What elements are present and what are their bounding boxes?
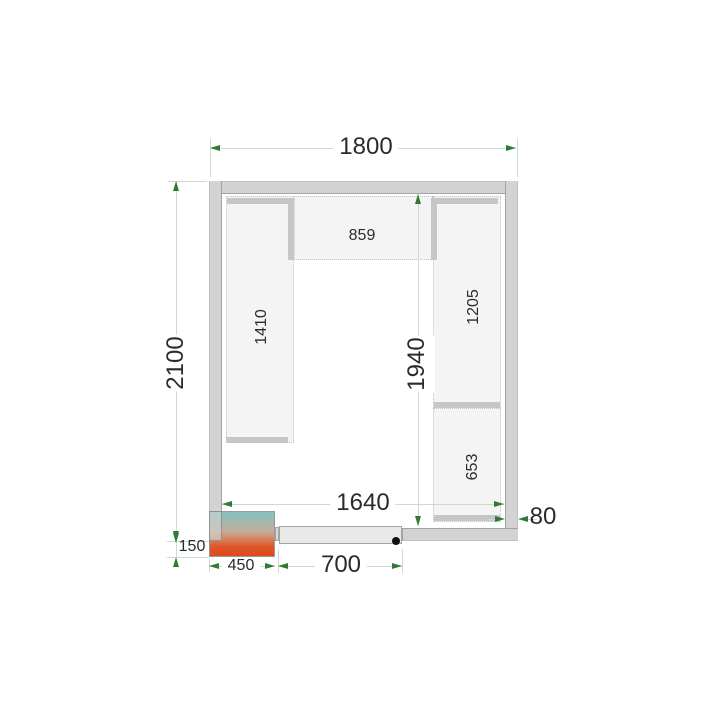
shelf-right-upper-label: 1205	[466, 289, 482, 325]
arrow-1640-left	[222, 501, 232, 507]
dimension-450-label: 450	[222, 558, 261, 574]
arrow-450-right	[265, 563, 275, 569]
shelf-band-right-middle	[434, 402, 500, 408]
arrow-80-right	[518, 516, 528, 522]
wall-right	[505, 181, 518, 541]
arrow-80-left	[495, 516, 505, 522]
door-panel	[279, 526, 402, 544]
shelf-band-left-bottom	[226, 437, 288, 443]
dimension-1800-label: 1800	[333, 135, 398, 159]
shelf-band-right-top	[431, 198, 498, 204]
dimension-line-150	[176, 541, 177, 557]
shelf-band-left-top	[227, 198, 294, 204]
shelf-band-left-vertical	[288, 198, 294, 260]
wall-top	[209, 181, 518, 194]
arrow-700-left	[278, 563, 288, 569]
dimension-2100-label: 2100	[158, 334, 194, 391]
arrow-1800-right	[506, 145, 516, 151]
arrow-2100-top	[173, 181, 179, 191]
cold-room-plan-diagram: 859 1410 1205 653 1800 2100 1940 1640 80…	[0, 0, 720, 720]
door-hinge-dot	[392, 537, 400, 545]
wall-corner-overlay	[209, 511, 222, 541]
arrow-1640-right	[494, 501, 504, 507]
shelf-top-label: 859	[349, 228, 376, 244]
wall-bottom-right	[402, 528, 518, 541]
arrow-1940-top	[415, 194, 421, 204]
dimension-1940-label: 1940	[399, 335, 435, 392]
arrow-1800-left	[210, 145, 220, 151]
arrow-1940-bottom	[415, 516, 421, 526]
extension-line-1800-right	[517, 139, 518, 177]
shelf-left-label: 1410	[254, 309, 270, 345]
dimension-1640-label: 1640	[330, 491, 395, 515]
arrow-700-right	[392, 563, 402, 569]
shelf-band-right-vertical	[431, 198, 437, 260]
dimension-700-label: 700	[315, 553, 367, 577]
extension-line-700-right	[402, 549, 403, 573]
shelf-band-right-bottom	[434, 515, 500, 521]
wall-left	[209, 181, 222, 511]
shelf-right-lower-label: 653	[465, 454, 481, 481]
dimension-80-label: 80	[530, 505, 557, 529]
dimension-150-label: 150	[179, 539, 206, 555]
extension-line-700-left	[278, 549, 279, 573]
arrow-450-left	[209, 563, 219, 569]
arrow-150-bottom	[173, 557, 179, 567]
